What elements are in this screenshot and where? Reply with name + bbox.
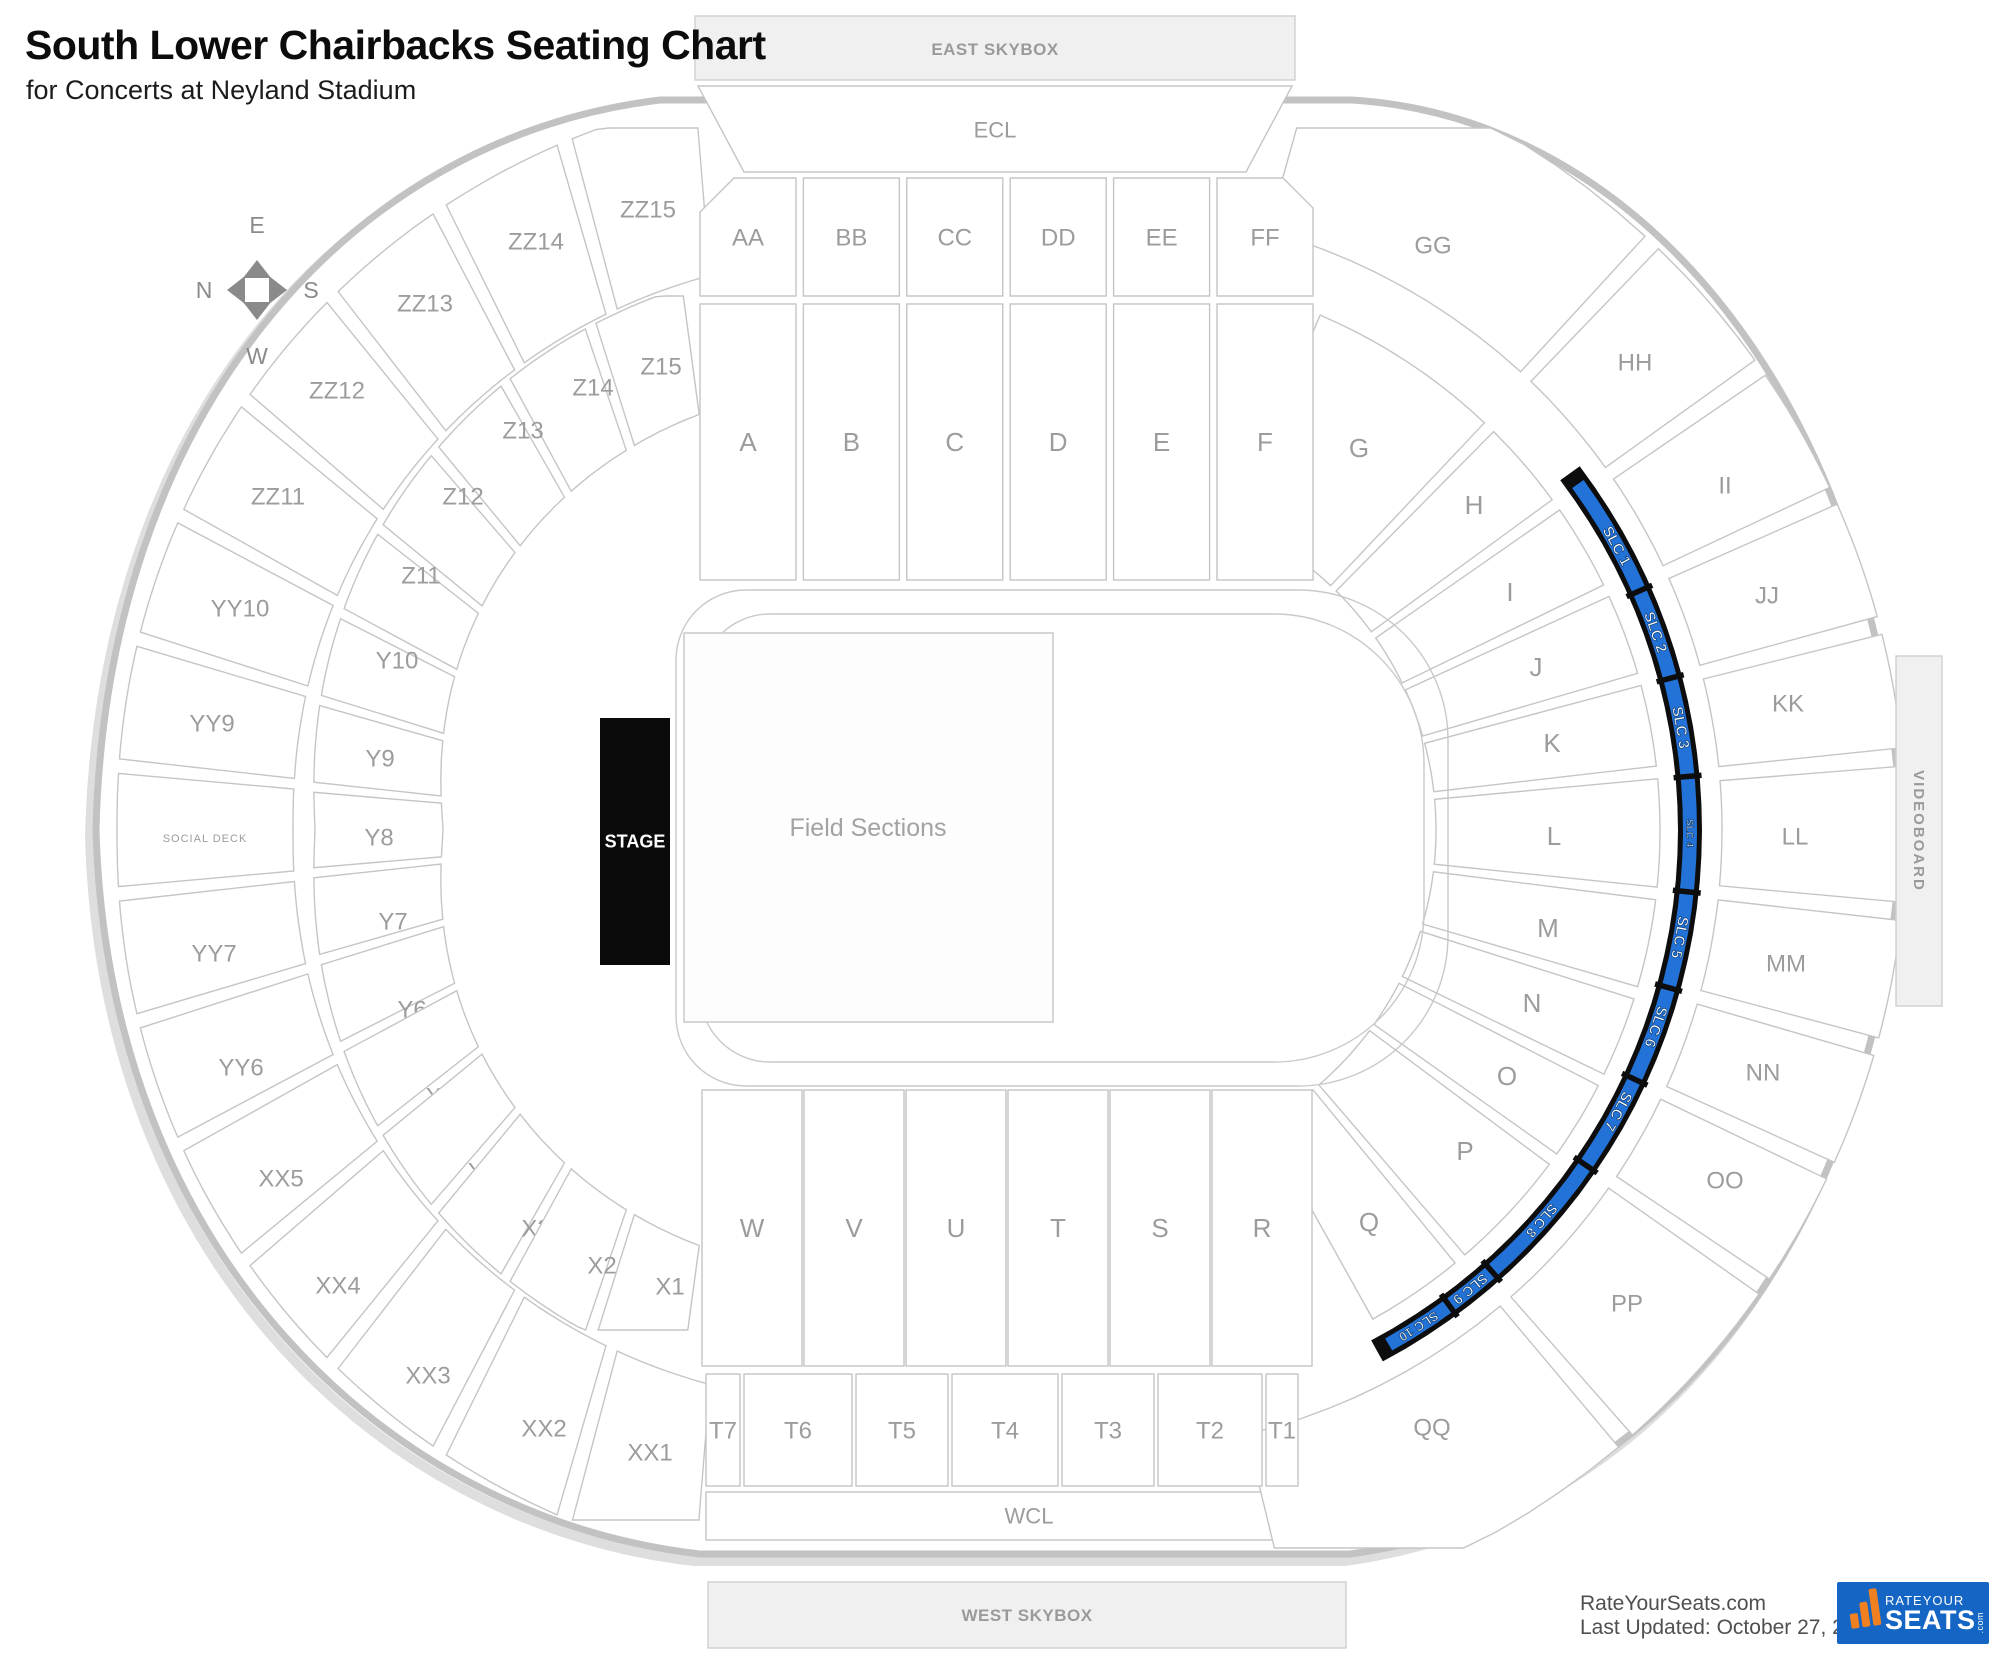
page-subtitle: for Concerts at Neyland Stadium bbox=[26, 75, 766, 106]
label-z14: Z14 bbox=[572, 374, 613, 401]
label-mm: MM bbox=[1766, 950, 1806, 977]
label-t2: T2 bbox=[1196, 1417, 1224, 1444]
rateyourseats-logo[interactable]: RATEYOUR SEATS .com bbox=[1837, 1582, 1989, 1644]
compass-south-label: S bbox=[303, 277, 318, 303]
logo-line2: SEATS bbox=[1885, 1607, 1976, 1634]
label-hh: HH bbox=[1618, 349, 1653, 376]
label-west-skybox: WEST SKYBOX bbox=[961, 1606, 1092, 1625]
compass-north-label: N bbox=[196, 277, 213, 303]
label-yy6: YY6 bbox=[218, 1054, 263, 1081]
label-t5: T5 bbox=[888, 1417, 916, 1444]
label-h: H bbox=[1465, 490, 1484, 520]
label-xx4: XX4 bbox=[315, 1272, 360, 1299]
label-r: R bbox=[1253, 1213, 1272, 1243]
label-aa: AA bbox=[732, 224, 764, 251]
label-z13: Z13 bbox=[502, 417, 543, 444]
label-stage: STAGE bbox=[605, 831, 666, 851]
label-cc: CC bbox=[937, 224, 972, 251]
label-e: E bbox=[1153, 427, 1170, 457]
label-w: W bbox=[740, 1213, 765, 1243]
section-SOCIAL DECK[interactable] bbox=[117, 773, 294, 886]
label-kk: KK bbox=[1772, 690, 1804, 717]
label-ii: II bbox=[1718, 472, 1731, 499]
label-bb: BB bbox=[835, 224, 867, 251]
label-n: N bbox=[1523, 988, 1542, 1018]
label-ee: EE bbox=[1146, 224, 1178, 251]
label-y10: Y10 bbox=[376, 647, 419, 674]
label-p: P bbox=[1456, 1136, 1473, 1166]
label-x2: X2 bbox=[587, 1252, 616, 1279]
label-y8: Y8 bbox=[364, 824, 393, 851]
label-c: C bbox=[945, 427, 964, 457]
label-t6: T6 bbox=[784, 1417, 812, 1444]
label-yy9: YY9 bbox=[189, 710, 234, 737]
label-ll: LL bbox=[1782, 823, 1809, 850]
label-l: L bbox=[1547, 821, 1561, 851]
label-q: Q bbox=[1359, 1207, 1379, 1237]
credits-updated: Last Updated: October 27, 2025 bbox=[1580, 1616, 1879, 1640]
credits-site: RateYourSeats.com bbox=[1580, 1592, 1879, 1616]
label-t: T bbox=[1050, 1213, 1066, 1243]
slc-divider-3 bbox=[1674, 775, 1702, 778]
label-east-skybox: EAST SKYBOX bbox=[931, 40, 1059, 59]
seating-chart-page: South Lower Chairbacks Seating Chart for… bbox=[0, 0, 2000, 1661]
label-zz13: ZZ13 bbox=[397, 290, 453, 317]
label-y7: Y7 bbox=[378, 908, 407, 935]
label-field-sections: Field Sections bbox=[789, 814, 946, 842]
label-t3: T3 bbox=[1094, 1417, 1122, 1444]
page-title: South Lower Chairbacks Seating Chart bbox=[25, 22, 766, 69]
label-z15: Z15 bbox=[640, 353, 681, 380]
label-j: J bbox=[1530, 652, 1543, 682]
label-slc-4: SLC 4 bbox=[1683, 819, 1694, 848]
logo-domain: .com bbox=[1975, 1612, 1985, 1634]
label-gg: GG bbox=[1414, 232, 1451, 259]
label-zz11: ZZ11 bbox=[251, 483, 305, 510]
credits: RateYourSeats.com Last Updated: October … bbox=[1580, 1592, 1879, 1640]
label-nn: NN bbox=[1746, 1059, 1781, 1086]
section-LL[interactable] bbox=[1720, 766, 1907, 902]
label-t4: T4 bbox=[991, 1417, 1019, 1444]
label-o: O bbox=[1497, 1061, 1517, 1091]
label-y9: Y9 bbox=[365, 745, 394, 772]
compass-east-label: E bbox=[249, 212, 264, 238]
label-z12: Z12 bbox=[442, 483, 483, 510]
label-yy10: YY10 bbox=[211, 595, 270, 622]
label-yy7: YY7 bbox=[191, 940, 236, 967]
label-ecl: ECL bbox=[974, 118, 1017, 143]
label-wcl: WCL bbox=[1005, 1504, 1054, 1529]
label-pp: PP bbox=[1611, 1290, 1643, 1317]
label-t7: T7 bbox=[709, 1417, 737, 1444]
label-oo: OO bbox=[1706, 1167, 1743, 1194]
label-t1: T1 bbox=[1268, 1417, 1296, 1444]
label-m: M bbox=[1537, 913, 1559, 943]
label-u: U bbox=[947, 1213, 966, 1243]
label-k: K bbox=[1543, 728, 1561, 758]
label-zz14: ZZ14 bbox=[508, 228, 564, 255]
label-xx5: XX5 bbox=[258, 1165, 303, 1192]
compass-left-icon bbox=[227, 276, 245, 304]
label-qq: QQ bbox=[1413, 1414, 1450, 1441]
label-dd: DD bbox=[1041, 224, 1076, 251]
label-g: G bbox=[1349, 433, 1369, 463]
label-v: V bbox=[845, 1213, 863, 1243]
label-d: D bbox=[1049, 427, 1068, 457]
label-jj: JJ bbox=[1755, 582, 1779, 609]
label-xx1: XX1 bbox=[627, 1439, 672, 1466]
label-a: A bbox=[739, 427, 757, 457]
compass-up-icon bbox=[243, 260, 271, 278]
label-f: F bbox=[1257, 427, 1273, 457]
label-zz12: ZZ12 bbox=[309, 377, 365, 404]
label-b: B bbox=[843, 427, 860, 457]
label-x1: X1 bbox=[655, 1273, 684, 1300]
label-xx2: XX2 bbox=[521, 1415, 566, 1442]
compass-west-label: W bbox=[246, 343, 268, 369]
label-z11: Z11 bbox=[401, 562, 441, 589]
slc-divider-4 bbox=[1673, 890, 1701, 893]
label-ff: FF bbox=[1250, 224, 1279, 251]
label-zz15: ZZ15 bbox=[620, 196, 676, 223]
logo-bars-icon bbox=[1847, 1588, 1882, 1629]
label-videoboard: VIDEOBOARD bbox=[1910, 770, 1927, 892]
label-i: I bbox=[1506, 577, 1513, 607]
header: South Lower Chairbacks Seating Chart for… bbox=[25, 22, 766, 106]
label-social-deck: SOCIAL DECK bbox=[163, 833, 248, 845]
stadium-map: EAST SKYBOXECLWCLWEST SKYBOXZZ15ZZ14ZZ13… bbox=[0, 0, 2000, 1661]
label-xx3: XX3 bbox=[405, 1362, 450, 1389]
label-s: S bbox=[1151, 1213, 1168, 1243]
